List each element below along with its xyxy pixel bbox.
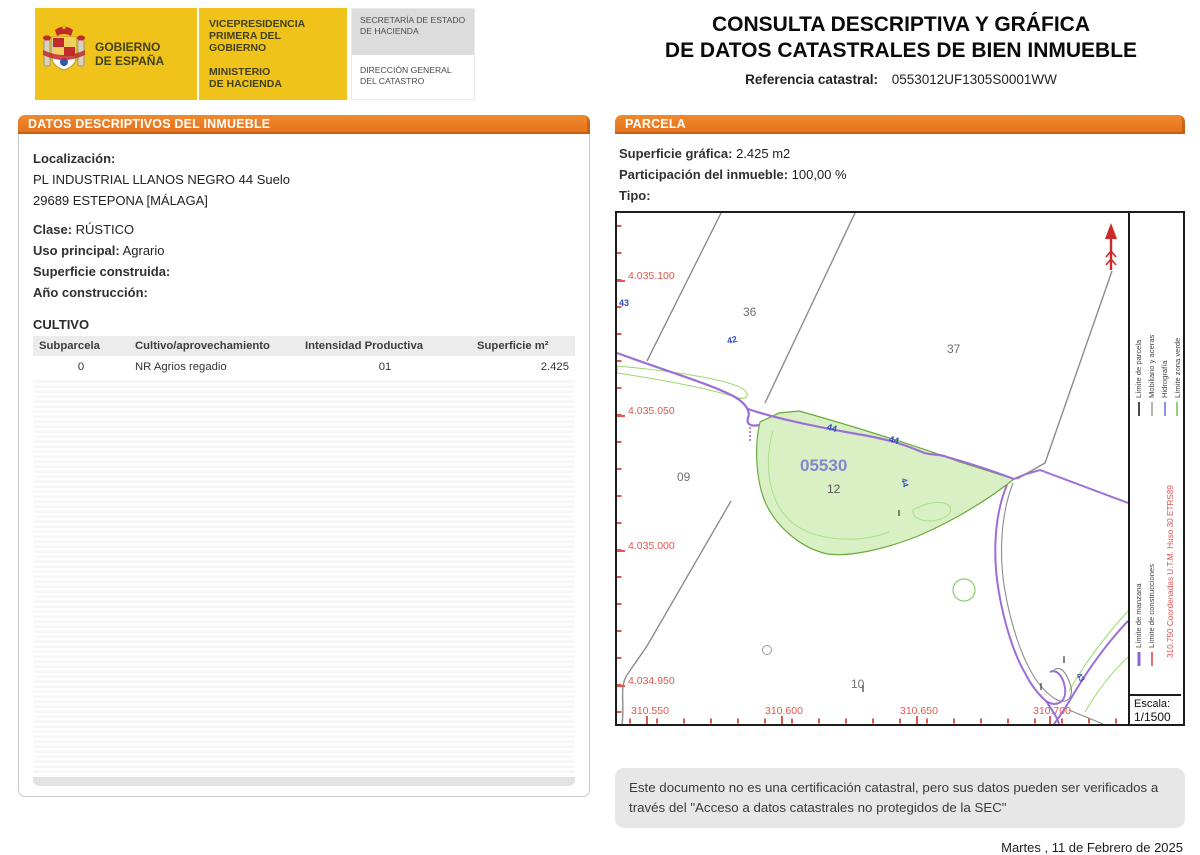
cadastral-map: 4.035.100 4.035.050 4.035.000 4.034.950 …	[615, 211, 1185, 726]
map-canvas: 4.035.100 4.035.050 4.035.000 4.034.950 …	[617, 213, 1128, 724]
boundary-37-right	[1017, 271, 1112, 479]
road-label-43b: 43	[1074, 671, 1087, 684]
boundary-09-12	[622, 501, 731, 724]
subparcela-value: 0	[33, 356, 129, 378]
legend-limite-construcciones: Límite de construcciones	[1147, 442, 1156, 692]
road-label-42: 42	[726, 334, 738, 346]
boundary-36-left	[647, 213, 721, 361]
parcel-ref-05530: 05530	[800, 456, 847, 475]
x-label-310550: 310.550	[631, 705, 669, 717]
col-cultivo: Cultivo/aprovechamiento	[129, 336, 299, 356]
gobierno-name: GOBIERNO DE ESPAÑA	[95, 40, 164, 68]
y-label-4035000: 4.035.000	[628, 540, 675, 552]
parcel-number-09: 09	[677, 470, 691, 484]
road-label-43: 43	[619, 298, 629, 308]
x-major-ticks	[647, 716, 1050, 724]
secretaria-block: SECRETARÍA DE ESTADO DE HACIENDA DIRECCI…	[351, 8, 475, 100]
clase-value: RÚSTICO	[76, 222, 135, 237]
intensidad-value: 01	[299, 356, 471, 378]
legend-limite-parcela: Límite de parcela	[1134, 213, 1143, 442]
y-label-4035050: 4.035.050	[628, 405, 675, 417]
document-date: Martes , 11 de Febrero de 2025	[615, 840, 1185, 855]
localizacion-city: 29689 ESTEPONA [MÁLAGA]	[33, 193, 208, 208]
y-label-4035100: 4.035.100	[628, 270, 675, 282]
masthead: GOBIERNO DE ESPAÑA VICEPRESIDENCIA PRIME…	[0, 0, 1200, 102]
ano-construccion-label: Año construcción:	[33, 285, 148, 300]
x-label-310700: 310.700	[1033, 705, 1071, 717]
small-circle-mark	[763, 646, 772, 655]
superficie-m2-value: 2.425	[471, 356, 575, 378]
col-superficie: Superficie m²	[471, 336, 575, 356]
disclaimer-line-1: Este documento no es una certificación c…	[629, 780, 1158, 795]
direccion-catastro-label: DIRECCIÓN GENERAL DEL CATASTRO	[352, 55, 474, 99]
col-intensidad: Intensidad Productiva	[299, 336, 471, 356]
parcela-header: PARCELA	[615, 115, 1185, 134]
x-label-310600: 310.600	[765, 705, 803, 717]
participacion-label: Participación del inmueble:	[619, 167, 788, 182]
cultivo-row: 0 NR Agrios regadio 01 2.425	[33, 356, 575, 378]
x-label-310650: 310.650	[900, 705, 938, 717]
localizacion-label: Localización:	[33, 151, 115, 166]
scale-value: 1/1500	[1134, 711, 1181, 724]
table-footer-strip	[33, 777, 575, 786]
cadastral-reference: Referencia catastral: 0553012UF1305S0001…	[615, 72, 1187, 87]
parcel-number-36: 36	[743, 305, 757, 319]
spain-coat-of-arms-icon	[41, 24, 87, 85]
legend-mobiliario-aceras: Mobiliario y aceras	[1147, 213, 1156, 442]
datos-descriptivos-header: DATOS DESCRIPTIVOS DEL INMUEBLE	[18, 115, 590, 134]
superficie-construida-label: Superficie construida:	[33, 264, 170, 279]
title-line-2: DE DATOS CATASTRALES DE BIEN INMUEBLE	[615, 38, 1187, 64]
government-logo-block: GOBIERNO DE ESPAÑA VICEPRESIDENCIA PRIME…	[35, 8, 475, 100]
cultivo-title: CULTIVO	[33, 317, 575, 332]
gobierno-espana-block: GOBIERNO DE ESPAÑA	[35, 8, 197, 100]
legend-limite-manzana: Límite de manzana	[1134, 442, 1143, 692]
scale-box: Escala: 1/1500	[1130, 694, 1181, 724]
col-subparcela: Subparcela	[33, 336, 129, 356]
uso-principal-value: Agrario	[123, 243, 165, 258]
green-circle	[953, 579, 975, 601]
parcela-panel: PARCELA Superficie gráfica: 2.425 m2 Par…	[615, 115, 1185, 855]
title-line-1: CONSULTA DESCRIPTIVA Y GRÁFICA	[615, 12, 1187, 38]
uso-principal-label: Uso principal:	[33, 243, 120, 258]
map-legend: Límite de manzana Límite de parcela Lími…	[1130, 213, 1181, 692]
superficie-grafica-label: Superficie gráfica:	[619, 146, 732, 161]
path-boundary-hook	[1002, 483, 1072, 701]
secretaria-label: SECRETARÍA DE ESTADO DE HACIENDA	[352, 9, 474, 55]
disclaimer-box: Este documento no es una certificación c…	[615, 768, 1185, 828]
legend-hidrografia: Hidrografía	[1160, 213, 1169, 442]
document-title: CONSULTA DESCRIPTIVA Y GRÁFICA DE DATOS …	[615, 12, 1187, 87]
north-arrow-icon	[1105, 223, 1117, 270]
parcel-number-12: 12	[827, 482, 841, 496]
ministerio-label: MINISTERIO DE HACIENDA	[209, 66, 337, 90]
cadastral-reference-label: Referencia catastral:	[745, 72, 878, 87]
cultivo-table: Subparcela Cultivo/aprovechamiento Inten…	[33, 336, 575, 378]
clase-label: Clase:	[33, 222, 72, 237]
datos-descriptivos-body: Localización: PL INDUSTRIAL LLANOS NEGRO…	[18, 134, 590, 797]
superficie-grafica-value: 2.425 m2	[736, 146, 790, 161]
utm-coordinates-note: 310.750 Coordenadas U.T.M. Huso 30 ETRS8…	[1166, 442, 1175, 692]
participacion-value: 100,00 %	[792, 167, 847, 182]
y-label-4034950: 4.034.950	[628, 675, 675, 687]
cadastral-reference-value: 0553012UF1305S0001WW	[892, 72, 1057, 87]
datos-descriptivos-panel: DATOS DESCRIPTIVOS DEL INMUEBLE Localiza…	[18, 115, 590, 797]
tipo-label: Tipo:	[619, 188, 651, 203]
parcela-fields: Superficie gráfica: 2.425 m2 Participaci…	[615, 134, 1185, 206]
map-legend-strip: Límite de manzana Límite de parcela Lími…	[1128, 213, 1181, 724]
localizacion-address: PL INDUSTRIAL LLANOS NEGRO 44 Suelo	[33, 172, 290, 187]
road-diagonal-right	[1014, 470, 1128, 503]
ministry-block: VICEPRESIDENCIA PRIMERA DEL GOBIERNO MIN…	[199, 8, 347, 100]
disclaimer-line-2: través del "Acceso a datos catastrales n…	[629, 800, 1007, 815]
empty-table-rows	[33, 378, 575, 776]
cultivo-value: NR Agrios regadio	[129, 356, 299, 378]
boundary-36-right	[765, 213, 855, 403]
parcel-number-37: 37	[947, 342, 961, 356]
boundary-bottom-right	[1069, 710, 1103, 724]
vicepresidencia-label: VICEPRESIDENCIA PRIMERA DEL GOBIERNO	[209, 18, 337, 54]
green-edges-bottom-right	[1069, 611, 1128, 712]
legend-limite-zona-verde: Límite zona verde	[1173, 213, 1182, 442]
y-major-ticks	[617, 281, 625, 686]
